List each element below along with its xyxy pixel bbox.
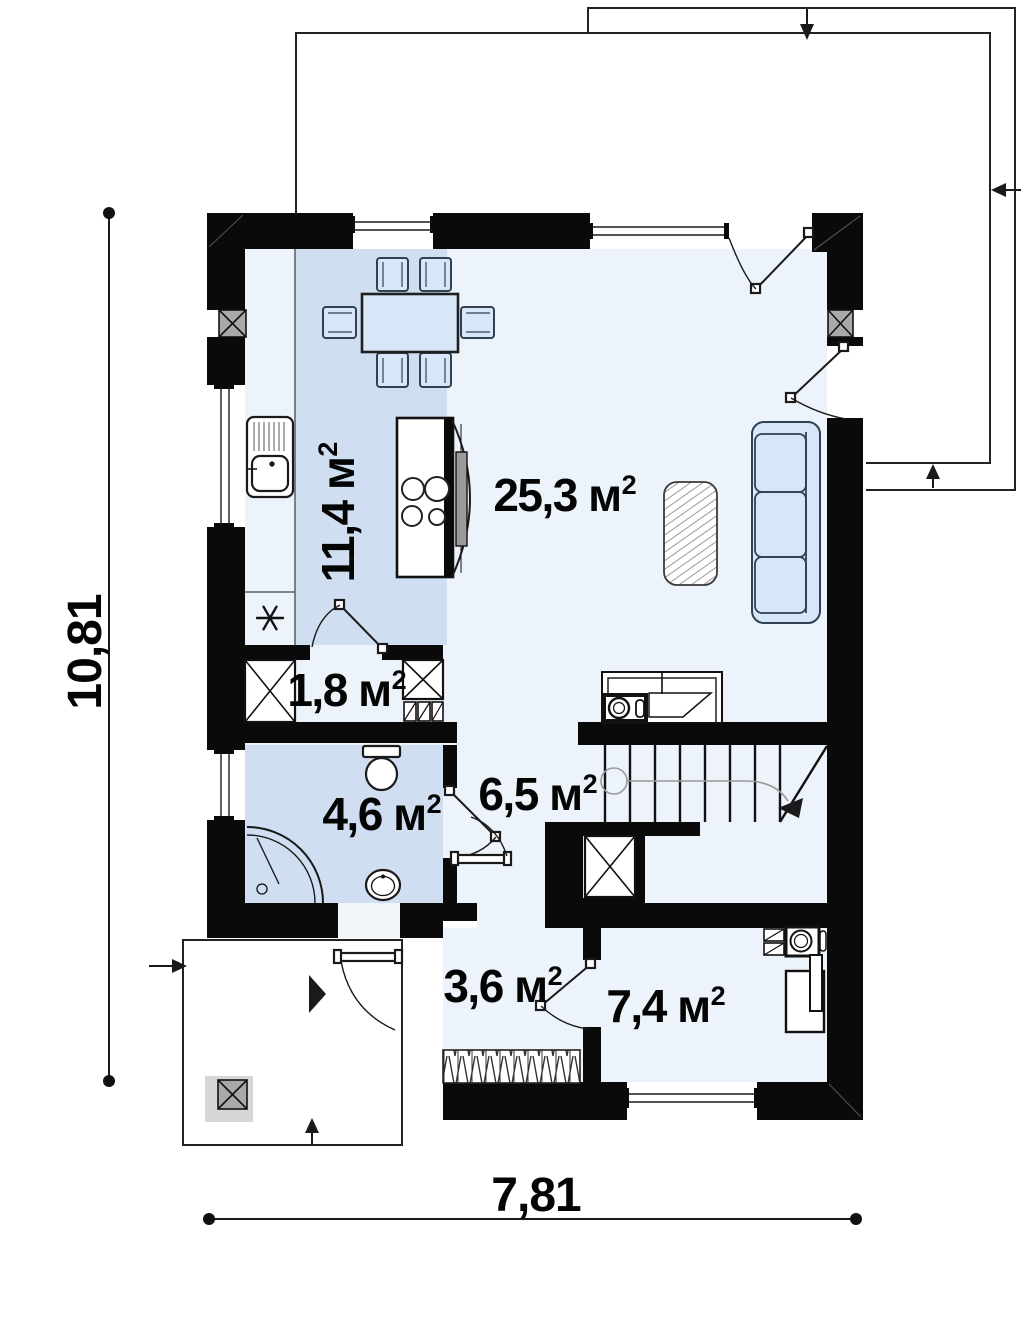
chair — [377, 353, 408, 387]
terrace-arrow-left-icon — [991, 183, 1021, 197]
window-bottom-boiler — [624, 1082, 759, 1120]
dimension-width-label: 7,81 — [491, 1172, 580, 1220]
terrace-arrow-down-icon — [800, 9, 814, 40]
porch — [149, 940, 402, 1146]
room-label-kitchen: 11,4 м2 — [315, 442, 361, 583]
fireplace — [602, 672, 722, 723]
dimension-height-label: 10,81 — [62, 594, 110, 709]
column-right-icon — [828, 310, 853, 337]
floor-doorway-patch — [477, 903, 545, 928]
chair — [461, 307, 494, 338]
bathroom-sink-icon — [366, 870, 400, 900]
boiler-unit-icon — [764, 927, 826, 956]
entry-direction-marker — [309, 975, 326, 1013]
wardrobe-x-right-icon — [403, 660, 443, 721]
room-label-living-room: 25,3 м2 — [493, 472, 636, 518]
window-top-living — [588, 223, 729, 239]
toilet-icon — [363, 746, 400, 790]
room-label-bathroom: 4,6 м2 — [322, 791, 441, 837]
chair — [420, 353, 451, 387]
room-label-entry: 3,6 м2 — [443, 963, 562, 1009]
porch-arrow-right-icon — [149, 959, 187, 973]
chair — [323, 307, 356, 338]
floor-plan-drawing — [0, 0, 1024, 1320]
column-porch-icon — [218, 1080, 247, 1109]
room-label-hall: 6,5 м2 — [478, 771, 597, 817]
column-left-icon — [219, 310, 246, 337]
floor-plan-page: 11,4 м2 25,3 м2 1,8 м2 4,6 м2 6,5 м2 3,6… — [0, 0, 1024, 1320]
window-left-bathroom — [207, 749, 245, 821]
kitchen-sink-icon — [247, 417, 293, 497]
doormat — [443, 1050, 580, 1083]
rug — [664, 482, 717, 585]
window-top-kitchen — [350, 213, 435, 249]
chair — [420, 258, 451, 291]
floor-entry-threshold — [338, 903, 400, 938]
vent-shaft-icon — [585, 836, 635, 897]
room-label-closet: 1,8 м2 — [287, 667, 406, 713]
terrace-arrow-up-icon — [926, 464, 940, 488]
table-top — [362, 294, 458, 352]
chair — [377, 258, 408, 291]
porch-arrow-up-icon — [305, 1118, 319, 1146]
partition-post — [456, 452, 467, 546]
window-left-kitchen — [207, 384, 245, 528]
sofa — [752, 422, 820, 623]
door-front-entry — [334, 950, 402, 1030]
room-label-boiler-room: 7,4 м2 — [606, 983, 725, 1029]
